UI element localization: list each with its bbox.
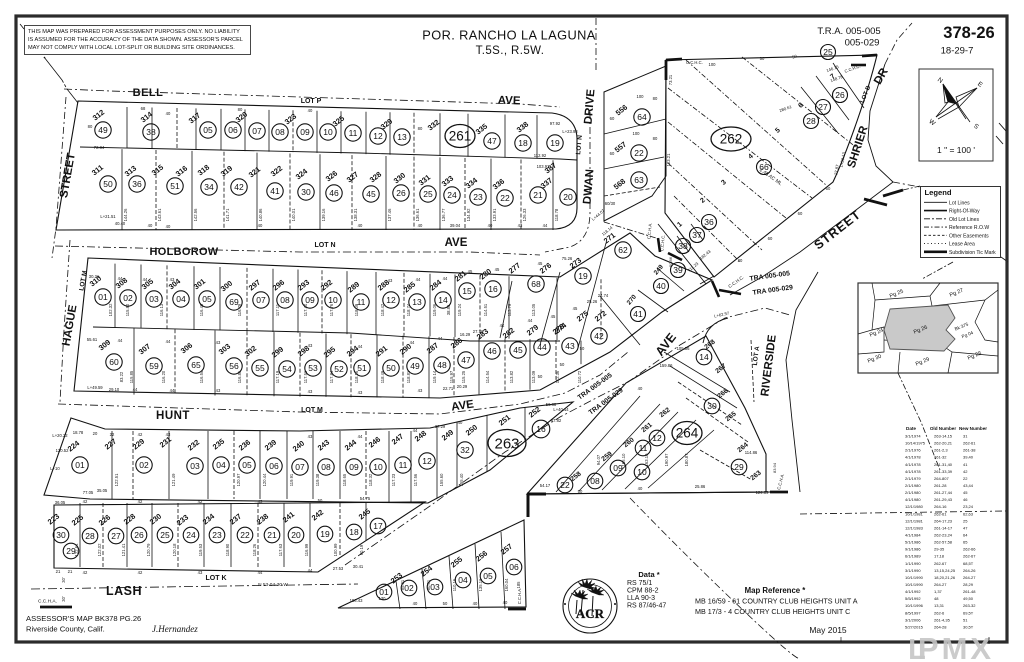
svg-text:110.16: 110.16 — [452, 578, 457, 591]
svg-text:37.29: 37.29 — [435, 424, 446, 429]
svg-text:01: 01 — [75, 460, 85, 470]
svg-text:264-27: 264-27 — [963, 575, 976, 580]
svg-text:262-67: 262-67 — [963, 554, 976, 559]
svg-text:05: 05 — [483, 571, 493, 581]
svg-text:Date: Date — [906, 426, 916, 431]
svg-text:123.21: 123.21 — [666, 153, 671, 166]
svg-text:103.92: 103.92 — [537, 164, 550, 169]
svg-text:264-28: 264-28 — [934, 624, 947, 629]
svg-text:05: 05 — [203, 125, 213, 135]
svg-text:118.65: 118.65 — [342, 473, 347, 486]
svg-text:18.78: 18.78 — [73, 430, 84, 435]
svg-text:190.97: 190.97 — [664, 453, 669, 466]
svg-text:60: 60 — [826, 186, 831, 191]
svg-text:378-26: 378-26 — [943, 24, 994, 42]
svg-text:140.86: 140.86 — [258, 208, 263, 221]
svg-text:22: 22 — [500, 193, 510, 203]
svg-text:45: 45 — [538, 261, 543, 266]
svg-text:27: 27 — [818, 102, 828, 112]
svg-text:26: 26 — [835, 90, 845, 100]
svg-text:264-27: 264-27 — [934, 582, 947, 587]
svg-text:51: 51 — [963, 617, 968, 622]
svg-text:43: 43 — [166, 432, 171, 437]
svg-text:11: 11 — [639, 443, 648, 453]
svg-text:31: 31 — [963, 434, 968, 439]
svg-text:11: 11 — [399, 460, 408, 470]
svg-text:5/5/1992: 5/5/1992 — [905, 596, 921, 601]
svg-text:42: 42 — [198, 499, 203, 504]
svg-text:159.86: 159.86 — [660, 363, 673, 368]
svg-text:118.90: 118.90 — [225, 543, 230, 556]
svg-text:22: 22 — [560, 480, 570, 490]
svg-text:1/1/1990: 1/1/1990 — [905, 561, 921, 566]
svg-text:5/27/2015: 5/27/2015 — [905, 624, 924, 629]
svg-text:HOLBOROW: HOLBOROW — [149, 246, 218, 258]
svg-text:118.26: 118.26 — [252, 543, 257, 556]
svg-text:65: 65 — [191, 360, 201, 370]
svg-text:68,5T: 68,5T — [963, 561, 974, 566]
svg-text:120.97: 120.97 — [236, 473, 241, 486]
svg-text:12: 12 — [373, 131, 383, 141]
svg-text:08: 08 — [321, 462, 331, 472]
svg-text:136.77: 136.77 — [441, 208, 446, 221]
svg-text:117.76: 117.76 — [329, 303, 334, 316]
svg-text:40: 40 — [638, 486, 643, 491]
svg-text:43: 43 — [308, 434, 313, 439]
svg-text:262-61: 262-61 — [934, 511, 947, 516]
svg-text:80: 80 — [418, 126, 423, 131]
svg-text:26: 26 — [396, 188, 406, 198]
svg-text:Legend: Legend — [925, 188, 952, 197]
svg-text:22: 22 — [963, 476, 968, 481]
svg-text:10/1/1990: 10/1/1990 — [905, 582, 924, 587]
svg-text:16: 16 — [536, 424, 546, 434]
svg-text:56: 56 — [229, 361, 239, 371]
svg-text:41: 41 — [963, 462, 968, 467]
svg-text:C.C.H.C.: C.C.H.C. — [686, 60, 703, 65]
svg-text:65: 65 — [963, 540, 968, 545]
svg-text:50: 50 — [578, 489, 583, 494]
svg-text:4/1/1980: 4/1/1980 — [905, 497, 921, 502]
svg-text:117.63: 117.63 — [278, 543, 283, 556]
svg-text:160.04: 160.04 — [504, 578, 509, 591]
svg-text:32: 32 — [460, 445, 470, 455]
svg-text:Map Reference *: Map Reference * — [745, 586, 807, 595]
svg-text:90.19: 90.19 — [359, 544, 364, 555]
svg-text:10/1/1990: 10/1/1990 — [905, 575, 924, 580]
svg-text:LOT K: LOT K — [206, 575, 227, 582]
svg-text:42: 42 — [83, 570, 88, 575]
svg-text:HUNT: HUNT — [156, 410, 190, 422]
svg-text:3/1/1990: 3/1/1990 — [905, 568, 921, 573]
svg-text:53: 53 — [308, 363, 318, 373]
svg-text:116.54: 116.54 — [199, 370, 204, 383]
svg-text:4/1/1978: 4/1/1978 — [905, 462, 921, 467]
svg-text:262-23,24: 262-23,24 — [934, 532, 953, 537]
svg-text:36: 36 — [132, 179, 142, 189]
svg-text:MB 17/3 - 4 COUNTRY CLUB H: MB 17/3 - 4 COUNTRY CLUB HEIGHTS UNIT C — [695, 607, 850, 616]
svg-text:64: 64 — [963, 532, 968, 537]
svg-text:06: 06 — [509, 562, 519, 572]
svg-text:50: 50 — [443, 601, 448, 606]
svg-text:07: 07 — [295, 462, 305, 472]
svg-text:03: 03 — [149, 294, 159, 304]
svg-text:03: 03 — [190, 461, 200, 471]
svg-text:37: 37 — [692, 230, 702, 240]
svg-text:118.32: 118.32 — [368, 473, 373, 486]
svg-text:64: 64 — [637, 112, 647, 122]
svg-text:21: 21 — [267, 530, 277, 540]
svg-text:30: 30 — [56, 530, 66, 540]
svg-text:122.02: 122.02 — [97, 543, 102, 556]
svg-text:83.22: 83.22 — [119, 371, 124, 382]
svg-text:39: 39 — [673, 265, 683, 275]
svg-text:38.89: 38.89 — [446, 304, 451, 315]
svg-text:44: 44 — [308, 568, 313, 573]
svg-text:140.01: 140.01 — [291, 208, 296, 221]
svg-text:30': 30' — [61, 596, 66, 602]
svg-text:LLA 90-3: LLA 90-3 — [627, 595, 655, 602]
svg-text:46: 46 — [329, 188, 339, 198]
svg-text:06: 06 — [269, 461, 279, 471]
svg-text:13: 13 — [412, 297, 422, 307]
svg-text:07: 07 — [252, 126, 262, 136]
svg-text:119.14: 119.14 — [432, 370, 437, 383]
svg-text:120.79: 120.79 — [146, 543, 151, 556]
svg-text:261-31,40: 261-31,40 — [934, 462, 953, 467]
svg-text:27.72: 27.72 — [473, 329, 484, 334]
svg-text:263: 263 — [494, 435, 519, 452]
svg-text:100: 100 — [709, 62, 717, 67]
svg-text:262-61: 262-61 — [963, 441, 976, 446]
svg-text:18: 18 — [349, 527, 359, 537]
svg-text:39.04: 39.04 — [450, 223, 461, 228]
svg-text:45: 45 — [468, 269, 473, 274]
svg-text:263-32: 263-32 — [963, 603, 976, 608]
svg-text:12/1/1981: 12/1/1981 — [905, 518, 924, 523]
svg-text:264-26: 264-26 — [963, 568, 976, 573]
svg-text:80: 80 — [653, 136, 658, 141]
svg-text:261-32: 261-32 — [934, 455, 947, 460]
svg-text:17,18: 17,18 — [934, 554, 945, 559]
svg-text:41: 41 — [633, 309, 643, 319]
svg-text:261-38: 261-38 — [963, 448, 976, 453]
svg-text:68: 68 — [141, 106, 146, 111]
svg-text:264: 264 — [676, 426, 699, 441]
svg-text:117.23: 117.23 — [391, 473, 396, 486]
svg-text:THIS MAP WAS PREPARED FOR ASSE: THIS MAP WAS PREPARED FOR ASSESSMENT PUR… — [28, 29, 240, 35]
svg-text:137.46: 137.46 — [387, 208, 392, 221]
svg-text:77.05: 77.05 — [83, 490, 94, 495]
svg-text:ASSESSOR'S MAP BK378 PG.26: ASSESSOR'S MAP BK378 PG.26 — [26, 614, 141, 623]
svg-text:AVE: AVE — [445, 237, 468, 249]
svg-text:20: 20 — [563, 192, 573, 202]
svg-text:60: 60 — [610, 116, 615, 121]
svg-text:12/1/1980: 12/1/1980 — [905, 504, 924, 509]
svg-text:40: 40 — [638, 386, 643, 391]
svg-text:100.99: 100.99 — [333, 543, 338, 556]
svg-text:118.78: 118.78 — [554, 208, 559, 221]
svg-text:04: 04 — [216, 460, 226, 470]
svg-text:116.46: 116.46 — [199, 303, 204, 316]
svg-text:08: 08 — [275, 127, 285, 137]
svg-text:3/1/2006: 3/1/2006 — [905, 617, 921, 622]
svg-text:25: 25 — [160, 530, 170, 540]
svg-text:10/1/1996: 10/1/1996 — [905, 603, 924, 608]
svg-text:25: 25 — [963, 518, 968, 523]
svg-text:06: 06 — [228, 125, 238, 135]
svg-text:165.10: 165.10 — [621, 453, 626, 466]
svg-text:62: 62 — [618, 245, 628, 255]
svg-text:114.54: 114.54 — [485, 370, 490, 383]
svg-text:30.41: 30.41 — [353, 564, 364, 569]
svg-text:119.24: 119.24 — [457, 303, 462, 316]
svg-text:40: 40 — [418, 223, 423, 228]
svg-text:43: 43 — [258, 499, 263, 504]
svg-text:02: 02 — [139, 460, 149, 470]
svg-text:L+23.98: L+23.98 — [562, 129, 578, 134]
svg-text:03: 03 — [430, 582, 440, 592]
svg-text:05: 05 — [242, 460, 252, 470]
svg-text:40: 40 — [358, 223, 363, 228]
svg-text:113.09: 113.09 — [531, 370, 536, 383]
svg-text:AVE: AVE — [498, 95, 522, 108]
svg-text:26: 26 — [134, 530, 144, 540]
svg-text:4/1/1978: 4/1/1978 — [905, 469, 921, 474]
svg-text:42: 42 — [594, 331, 604, 341]
svg-text:09: 09 — [305, 295, 315, 305]
svg-text:117.19: 117.19 — [275, 370, 280, 383]
svg-text:130: 130 — [379, 596, 387, 601]
svg-text:29.10: 29.10 — [109, 387, 120, 392]
svg-text:30: 30 — [738, 258, 743, 263]
svg-text:155.60: 155.60 — [439, 473, 444, 486]
svg-text:45: 45 — [513, 345, 523, 355]
svg-text:1,37: 1,37 — [934, 589, 943, 594]
svg-text:MAY NOT COMPLY WITH LOCAL LOT-: MAY NOT COMPLY WITH LOCAL LOT-SPLIT OR B… — [28, 45, 235, 51]
svg-text:39,40: 39,40 — [963, 455, 974, 460]
svg-text:18-29-7: 18-29-7 — [941, 46, 974, 57]
svg-text:121.41: 121.41 — [121, 543, 126, 556]
svg-text:14: 14 — [699, 352, 709, 362]
svg-text:113.82: 113.82 — [509, 370, 514, 383]
svg-text:119.06: 119.06 — [432, 303, 437, 316]
svg-text:04: 04 — [458, 575, 468, 585]
svg-text:261-27,44: 261-27,44 — [934, 490, 953, 495]
svg-text:261: 261 — [449, 129, 472, 144]
svg-text:62,63: 62,63 — [963, 511, 974, 516]
svg-text:55.61: 55.61 — [87, 337, 98, 342]
svg-text:100: 100 — [637, 94, 645, 99]
svg-text:14: 14 — [438, 295, 448, 305]
svg-text:69,5T: 69,5T — [963, 610, 974, 615]
svg-text:ACR: ACR — [576, 606, 605, 621]
svg-text:5/1/1986: 5/1/1986 — [905, 540, 921, 545]
svg-text:60: 60 — [768, 236, 773, 241]
svg-text:116.99: 116.99 — [304, 543, 309, 556]
svg-text:12/1/1983: 12/1/1983 — [905, 525, 924, 530]
svg-text:117.56: 117.56 — [413, 473, 418, 486]
svg-text:Old Number: Old Number — [930, 426, 957, 431]
svg-text:43: 43 — [308, 389, 313, 394]
svg-text:264-807: 264-807 — [934, 476, 949, 481]
svg-text:60: 60 — [798, 211, 803, 216]
svg-text:116.13: 116.13 — [159, 303, 164, 316]
svg-text:43: 43 — [216, 388, 221, 393]
svg-text:43: 43 — [388, 278, 393, 283]
svg-text:POR. RANCHO LA LAGUNA: POR. RANCHO LA LAGUNA — [422, 28, 595, 43]
svg-text:119.91: 119.91 — [289, 473, 294, 486]
svg-text:44: 44 — [528, 318, 533, 323]
svg-text:44: 44 — [118, 276, 123, 281]
svg-text:143.61: 143.61 — [157, 208, 162, 221]
svg-text:12: 12 — [422, 456, 432, 466]
svg-text:262-57,58: 262-57,58 — [934, 540, 953, 545]
svg-text:261-4,35: 261-4,35 — [934, 617, 951, 622]
svg-text:LASH: LASH — [106, 584, 142, 598]
svg-text:119.38: 119.38 — [315, 473, 320, 486]
svg-text:63: 63 — [634, 175, 644, 185]
svg-text:23: 23 — [473, 192, 483, 202]
svg-text:135.16: 135.16 — [478, 578, 483, 591]
svg-text:68: 68 — [531, 279, 541, 289]
svg-text:100: 100 — [633, 131, 641, 136]
svg-text:80: 80 — [653, 96, 658, 101]
svg-text:118.74: 118.74 — [406, 303, 411, 316]
svg-text:80.01: 80.01 — [426, 579, 431, 590]
svg-text:T.5S., R.5W.: T.5S., R.5W. — [476, 45, 545, 57]
svg-text:261-14-17: 261-14-17 — [934, 525, 953, 530]
svg-text:118.81: 118.81 — [406, 370, 411, 383]
svg-text:30': 30' — [61, 577, 66, 583]
svg-text:10: 10 — [323, 127, 333, 137]
svg-text:49: 49 — [410, 361, 420, 371]
svg-text:22: 22 — [634, 148, 644, 158]
svg-text:50: 50 — [580, 346, 585, 351]
svg-text:47: 47 — [487, 136, 497, 146]
svg-text:23,24: 23,24 — [963, 504, 974, 509]
svg-text:40: 40 — [148, 223, 153, 228]
svg-text:2/1/1980: 2/1/1980 — [905, 483, 921, 488]
svg-text:126.33: 126.33 — [522, 208, 527, 221]
svg-text:261-48: 261-48 — [963, 589, 976, 594]
svg-text:40: 40 — [308, 108, 313, 113]
svg-text:80: 80 — [88, 124, 93, 129]
svg-text:44: 44 — [416, 277, 421, 282]
svg-text:17: 17 — [373, 521, 383, 531]
svg-text:42: 42 — [138, 499, 143, 504]
svg-text:8/5/1997: 8/5/1997 — [905, 610, 921, 615]
svg-text:45: 45 — [551, 314, 556, 319]
svg-text:4/1/1978: 4/1/1978 — [905, 455, 921, 460]
svg-text:29-35: 29-35 — [934, 547, 945, 552]
svg-text:44: 44 — [358, 344, 363, 349]
svg-text:Data *: Data * — [638, 570, 659, 579]
svg-text:43: 43 — [216, 340, 221, 345]
svg-text:43: 43 — [518, 223, 523, 228]
svg-text:L: L — [908, 634, 926, 662]
svg-text:12: 12 — [386, 295, 396, 305]
svg-text:22: 22 — [110, 432, 115, 437]
svg-text:60: 60 — [610, 151, 615, 156]
svg-text:18,20,21,26: 18,20,21,26 — [934, 575, 956, 580]
svg-text:Riverside County, Calif.: Riverside County, Calif. — [26, 625, 105, 634]
svg-text:118.16: 118.16 — [354, 370, 359, 383]
svg-text:44: 44 — [443, 276, 448, 281]
svg-text:20.29: 20.29 — [457, 384, 468, 389]
svg-text:44: 44 — [537, 342, 547, 352]
svg-text:50: 50 — [318, 498, 323, 503]
svg-text:Lot Lines: Lot Lines — [949, 200, 970, 206]
svg-text:25.86: 25.86 — [695, 484, 706, 489]
svg-text:40: 40 — [413, 601, 418, 606]
svg-text:18: 18 — [518, 138, 528, 148]
svg-text:261-29,43: 261-29,43 — [934, 497, 953, 502]
svg-text:40: 40 — [488, 223, 493, 228]
svg-text:264-17,23: 264-17,23 — [934, 518, 953, 523]
svg-text:4/1/1984: 4/1/1984 — [905, 532, 921, 537]
svg-text:10/1/1981: 10/1/1981 — [905, 511, 924, 516]
svg-text:C.C.H.A.: C.C.H.A. — [517, 588, 522, 605]
svg-text:CPM 88-2: CPM 88-2 — [627, 588, 659, 595]
svg-text:BELL: BELL — [133, 87, 164, 99]
svg-text:40: 40 — [458, 420, 463, 425]
svg-text:118.42: 118.42 — [380, 303, 385, 316]
svg-text:52: 52 — [334, 364, 344, 374]
svg-text:36.05: 36.05 — [55, 500, 66, 505]
svg-text:3/1/1974: 3/1/1974 — [905, 434, 921, 439]
svg-text:25.26: 25.26 — [587, 299, 598, 304]
svg-text:110.72: 110.72 — [577, 370, 582, 383]
svg-text:44: 44 — [258, 570, 263, 575]
svg-text:43: 43 — [358, 390, 363, 395]
svg-text:116.20: 116.20 — [161, 370, 166, 383]
svg-text:16.29: 16.29 — [460, 332, 471, 337]
svg-text:16: 16 — [488, 284, 498, 294]
svg-text:10/14/1975: 10/14/1975 — [905, 441, 926, 446]
svg-text:262-67: 262-67 — [934, 561, 947, 566]
svg-text:264-16: 264-16 — [934, 504, 947, 509]
svg-text:21: 21 — [56, 569, 61, 574]
svg-text:28: 28 — [806, 116, 816, 126]
svg-text:40: 40 — [166, 224, 171, 229]
svg-text:10: 10 — [328, 295, 338, 305]
svg-text:22: 22 — [240, 530, 250, 540]
svg-text:40: 40 — [258, 223, 263, 228]
svg-text:112.36: 112.36 — [555, 370, 560, 383]
svg-text:261-2,3: 261-2,3 — [934, 448, 948, 453]
svg-text:87.82: 87.82 — [551, 418, 562, 423]
svg-text:MB 16/59 - 61 COUNTRY CLUB: MB 16/59 - 61 COUNTRY CLUB HEIGHTS UNIT … — [695, 597, 858, 606]
svg-text:45: 45 — [963, 490, 968, 495]
svg-text:106.43: 106.43 — [350, 598, 363, 603]
svg-text:120.52: 120.52 — [56, 448, 69, 453]
svg-text:L+20.22: L+20.22 — [52, 433, 68, 438]
svg-text:24: 24 — [186, 530, 196, 540]
svg-text:RS 87/46-47: RS 87/46-47 — [627, 603, 666, 610]
svg-text:N 53-04-30 W: N 53-04-30 W — [258, 582, 288, 588]
svg-text:50/86: 50/86 — [668, 256, 673, 267]
svg-text:09: 09 — [349, 462, 359, 472]
svg-text:04: 04 — [176, 294, 186, 304]
svg-text:RS 75/1: RS 75/1 — [627, 580, 652, 587]
svg-text:9/1/1986: 9/1/1986 — [905, 547, 921, 552]
svg-text:83.94: 83.94 — [772, 462, 777, 473]
svg-text:54: 54 — [282, 364, 292, 374]
svg-text:144.26: 144.26 — [123, 208, 128, 221]
svg-text:42: 42 — [83, 499, 88, 504]
svg-text:005-029: 005-029 — [845, 38, 880, 49]
